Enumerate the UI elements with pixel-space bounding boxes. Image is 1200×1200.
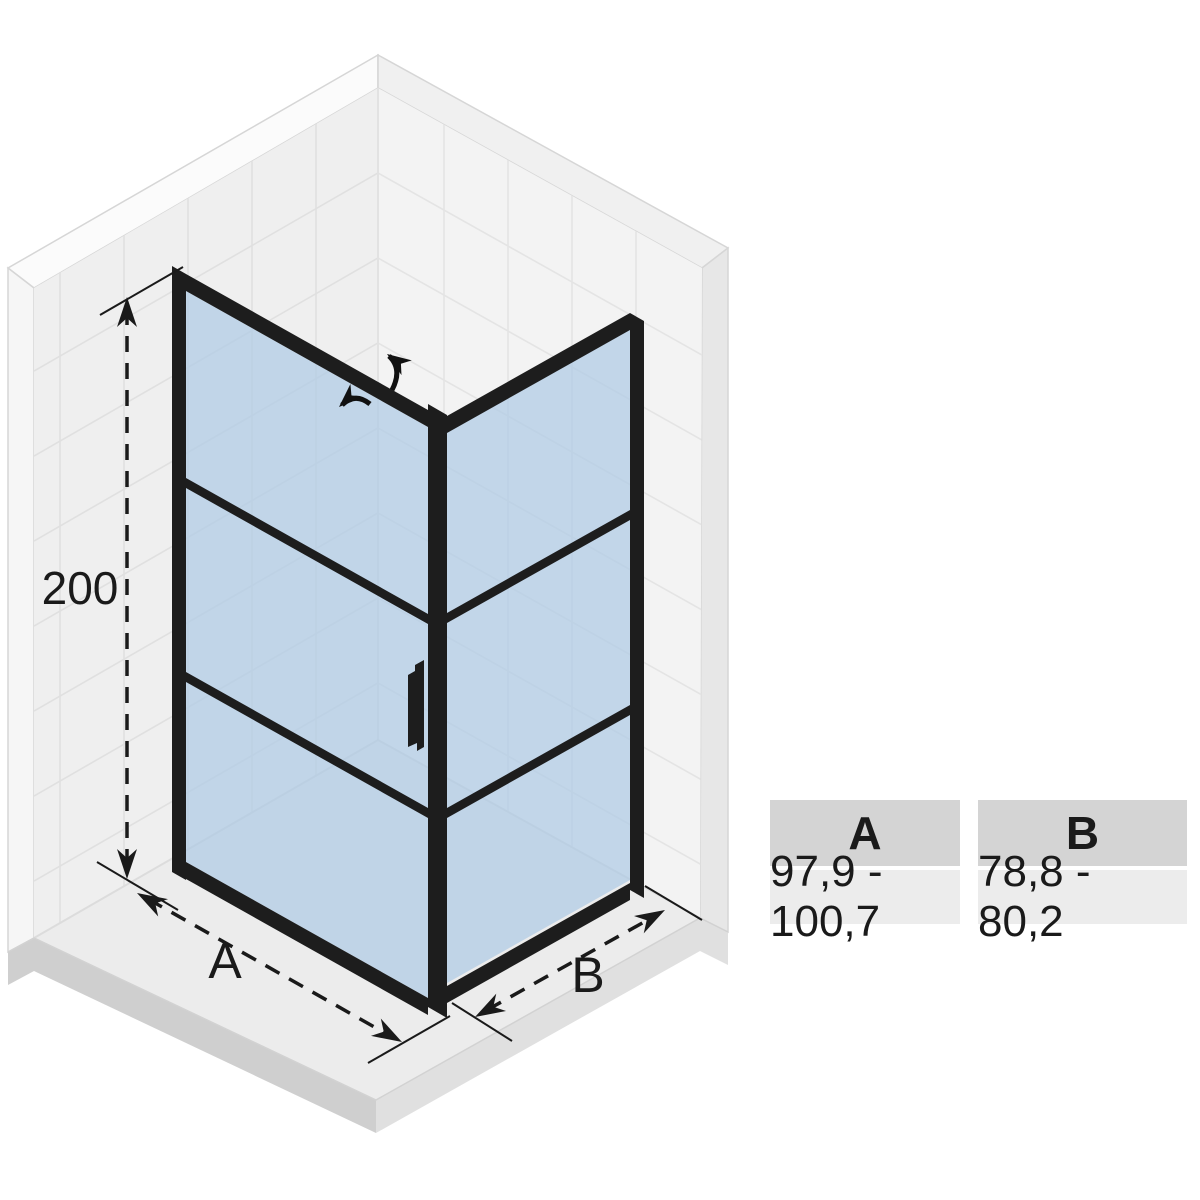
corner-post xyxy=(428,404,447,1018)
spec-table-value-a: 97,9 - 100,7 xyxy=(770,870,960,924)
spec-table: A B 97,9 - 100,7 78,8 - 80,2 xyxy=(770,800,1187,924)
height-dimension-label: 200 xyxy=(42,562,119,614)
isometric-drawing: 200 A B xyxy=(0,0,1200,1200)
panel-a-left-stile xyxy=(172,266,186,880)
glass-panel-b xyxy=(447,327,630,983)
shower-enclosure-diagram: 200 A B A xyxy=(0,0,1200,1200)
right-wall-side-edge xyxy=(700,248,728,932)
width-b-label: B xyxy=(571,947,604,1003)
spec-table-value-b: 78,8 - 80,2 xyxy=(978,870,1187,924)
left-wall-side-edge xyxy=(8,268,34,952)
width-a-label: A xyxy=(208,933,242,989)
door-handle xyxy=(408,660,424,751)
panel-b-right-stile xyxy=(630,313,644,898)
